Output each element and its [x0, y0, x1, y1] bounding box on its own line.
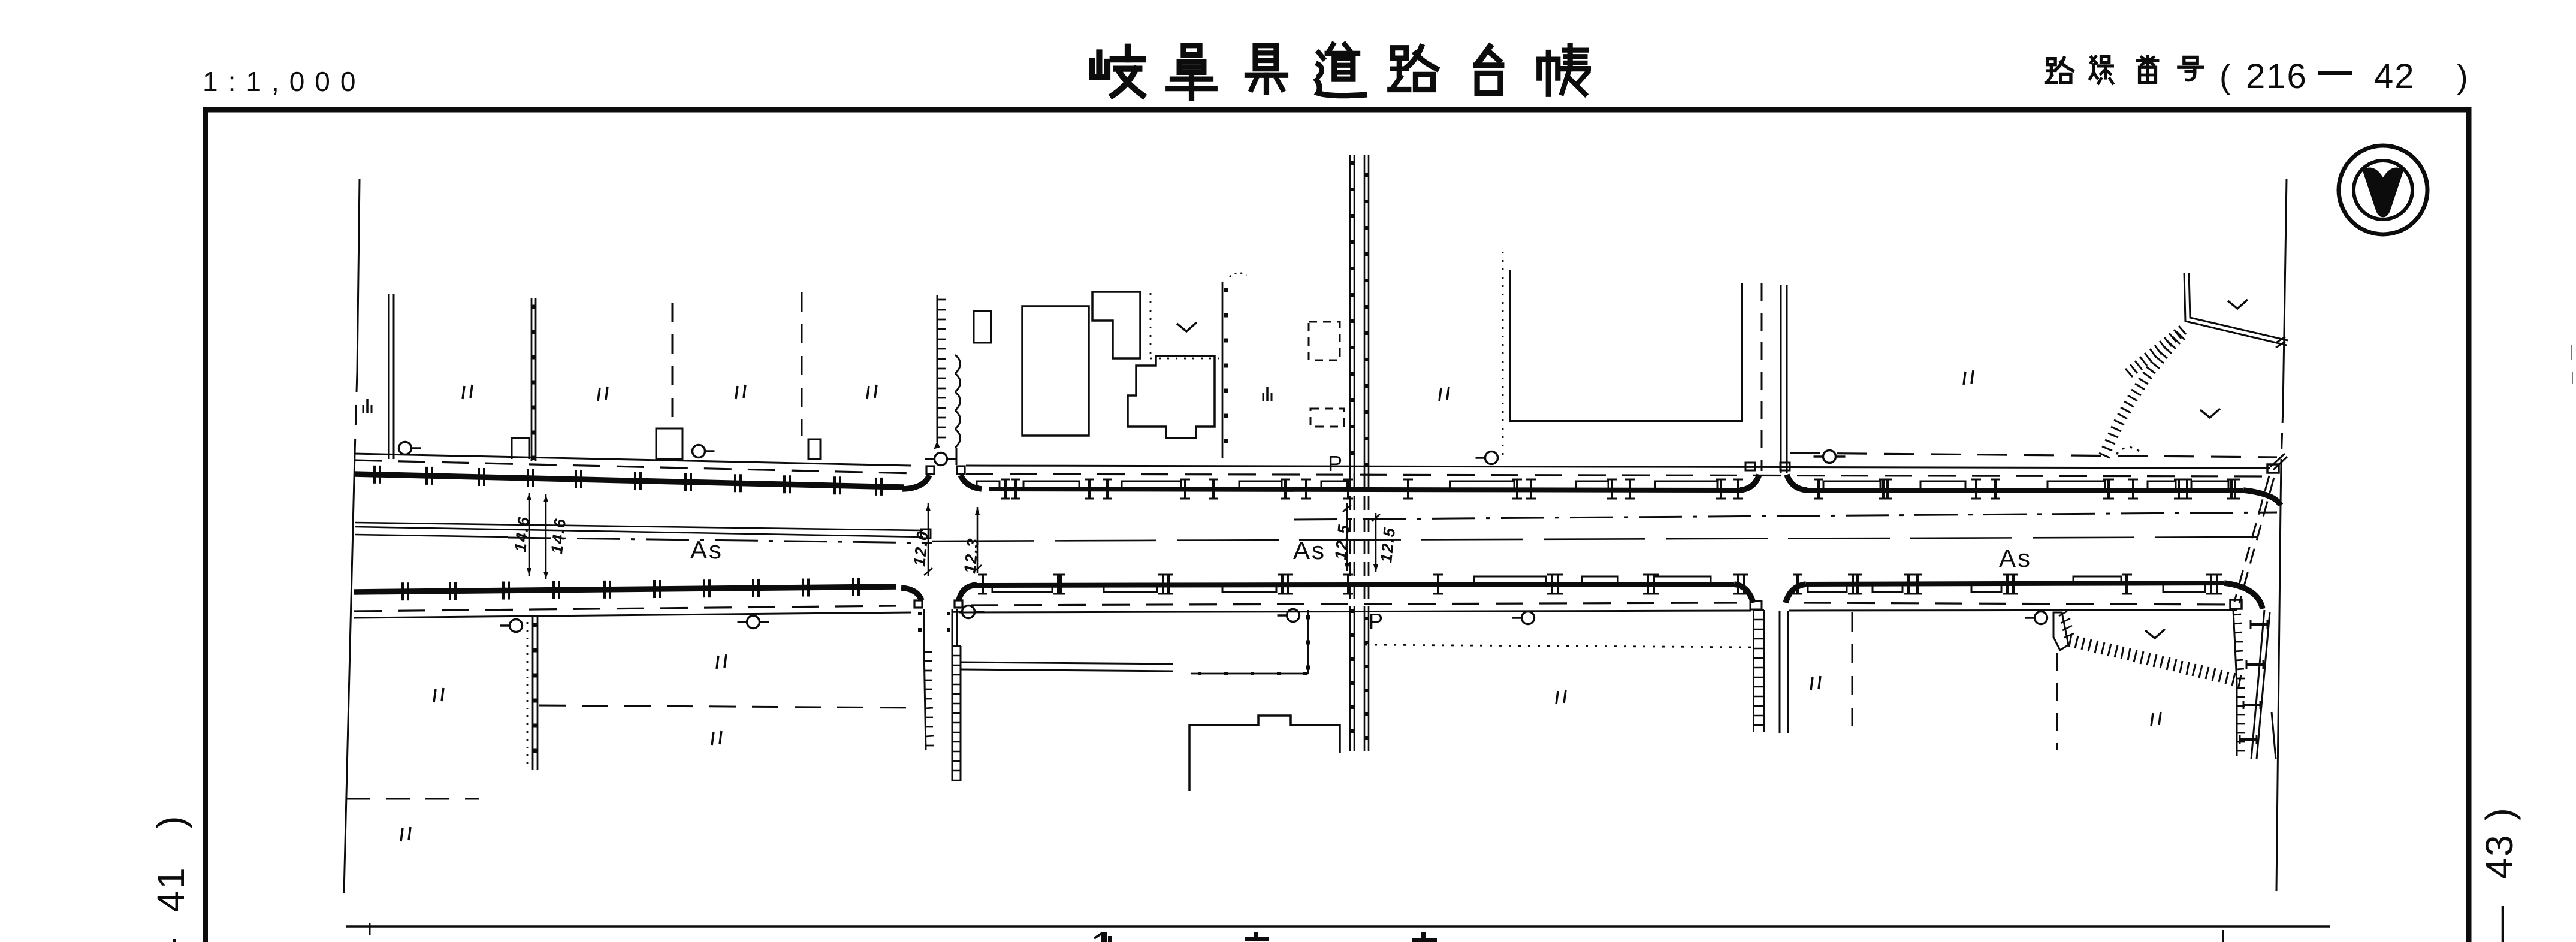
- svg-text:— 43 ): — 43 ): [2478, 806, 2521, 942]
- svg-text:As: As: [690, 536, 723, 564]
- svg-text:): ): [2457, 58, 2468, 95]
- svg-text:1:1,000: 1:1,000: [203, 66, 366, 97]
- svg-text:— 41 ): — 41 ): [149, 814, 192, 942]
- svg-text:As: As: [1999, 544, 2032, 572]
- svg-text:14.6: 14.6: [511, 515, 533, 552]
- svg-text:14.6: 14.6: [548, 517, 569, 554]
- svg-text:216: 216: [2246, 57, 2308, 96]
- svg-text:P: P: [1328, 451, 1342, 476]
- svg-text:P: P: [1369, 609, 1383, 633]
- svg-text:12.5: 12.5: [1377, 526, 1399, 563]
- svg-text:12.0: 12.0: [910, 529, 932, 567]
- svg-text:(: (: [2219, 58, 2231, 95]
- svg-text:12.3: 12.3: [961, 536, 982, 574]
- svg-text:42: 42: [2374, 57, 2415, 96]
- svg-text:As: As: [1293, 536, 1326, 564]
